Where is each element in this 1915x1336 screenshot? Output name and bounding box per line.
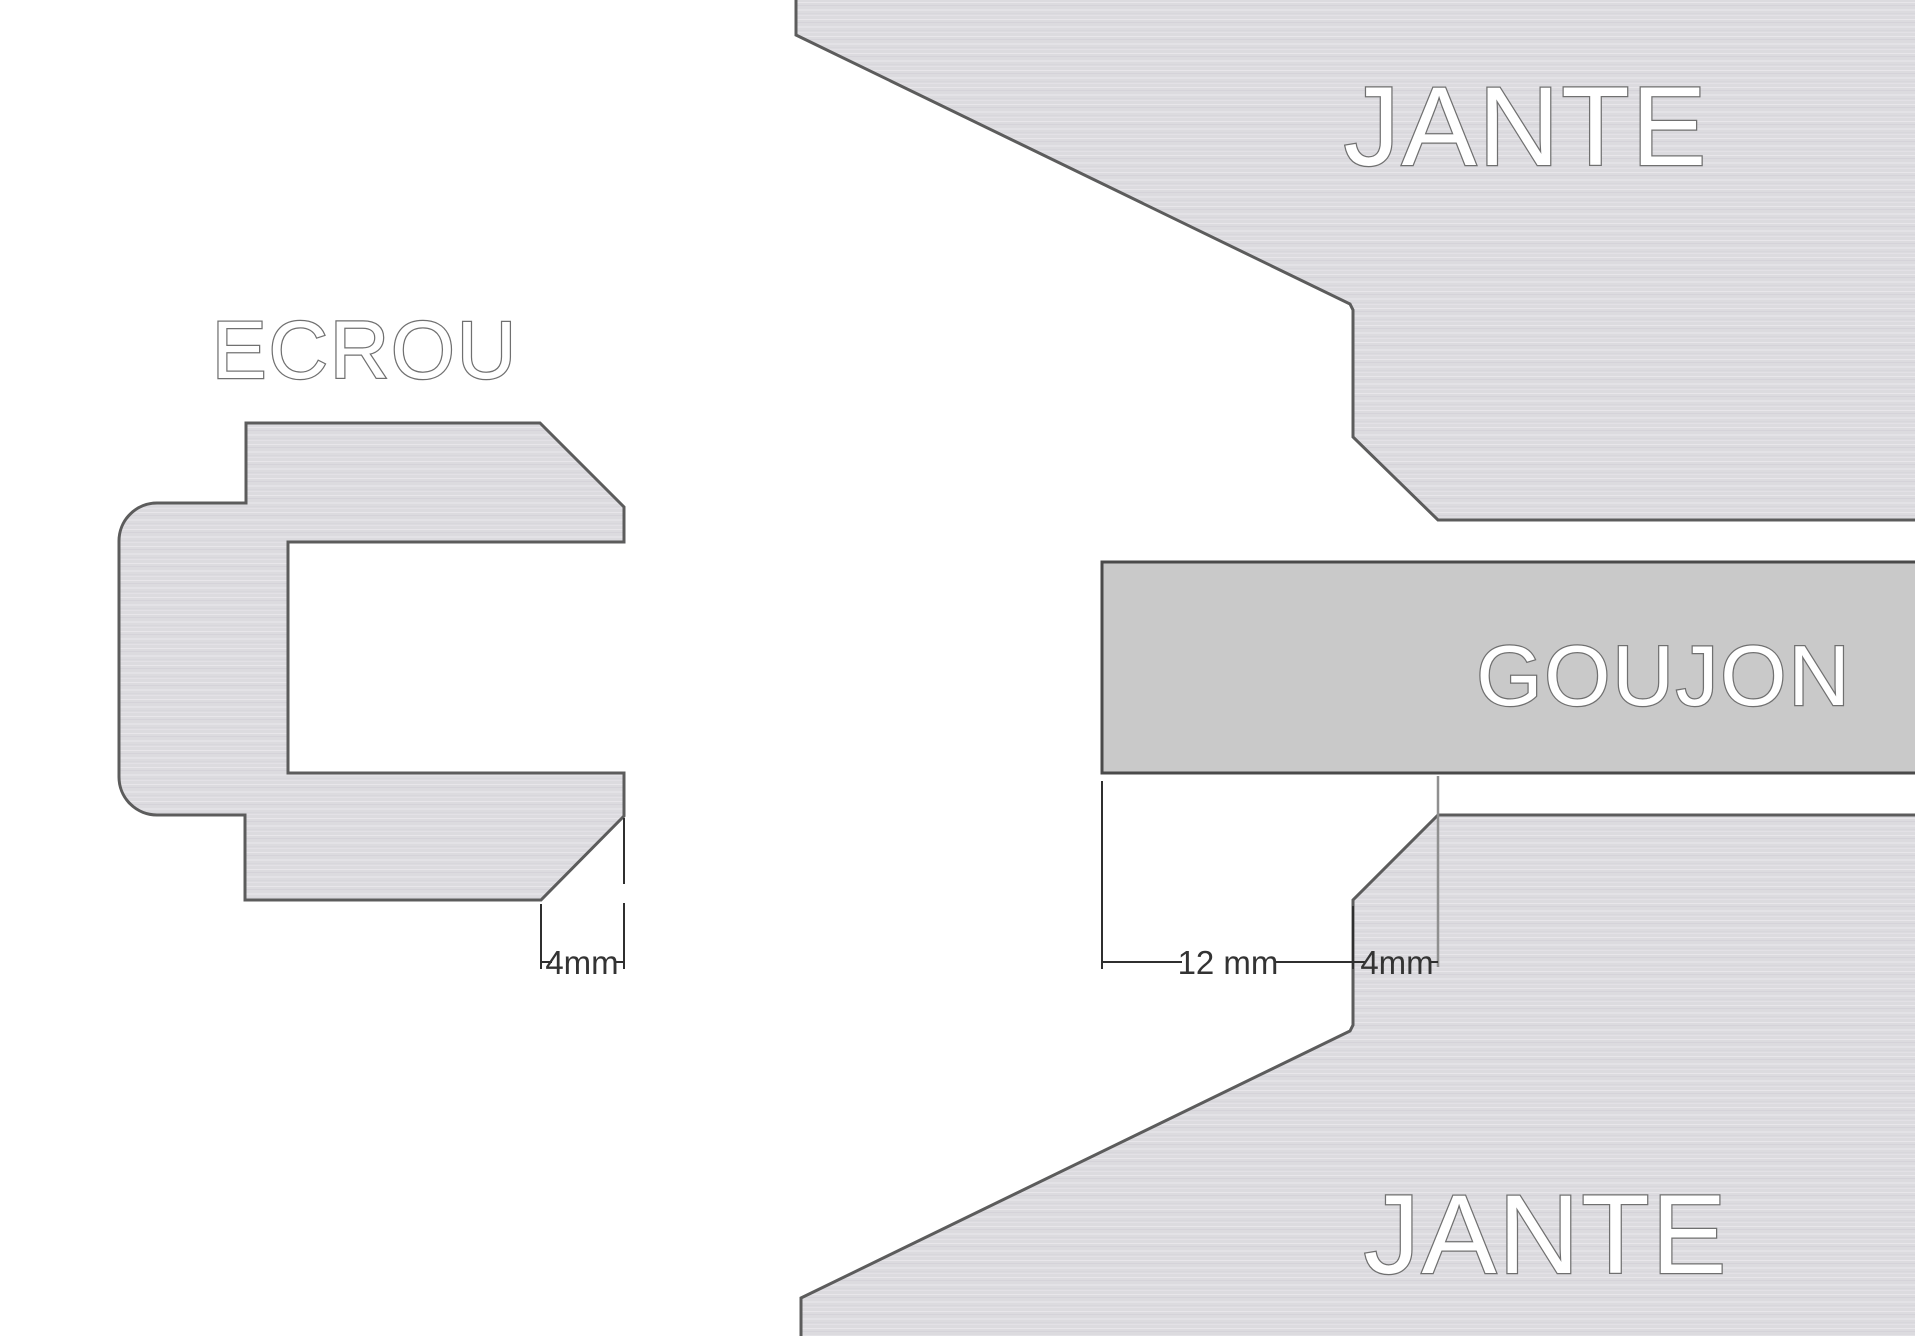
jante-chamfer-dimension-label: 4mm (1360, 944, 1433, 981)
wheel-assembly-cross-section-diagram: 4mm 12 mm 4mm ECROU JANTE GOUJON JANTE (0, 0, 1915, 1336)
ecrou-label: ECROU (212, 305, 518, 396)
goujon-protrusion-dimension-label: 12 mm (1178, 944, 1279, 981)
jante-bottom-label: JANTE (1364, 1172, 1729, 1297)
jante-top-label: JANTE (1344, 64, 1709, 189)
technical-drawing-canvas: 4mm 12 mm 4mm ECROU JANTE GOUJON JANTE (0, 0, 1915, 1336)
ecrou-chamfer-dimension-label: 4mm (545, 944, 618, 981)
goujon-label: GOUJON (1476, 629, 1852, 724)
